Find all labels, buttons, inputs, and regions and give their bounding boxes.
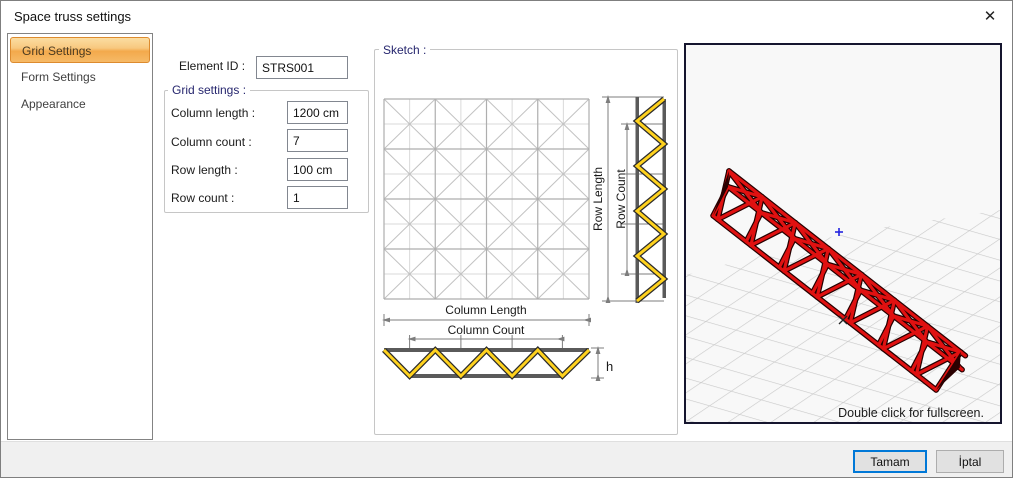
grid-settings-group-title: Grid settings : xyxy=(168,83,250,97)
row-length-field[interactable] xyxy=(287,158,348,181)
footer-bar: Tamam İptal xyxy=(1,441,1012,478)
row-count-dim-label: Row Count xyxy=(614,169,628,229)
column-length-dim-label: Column Length xyxy=(445,303,526,317)
sidebar-item-form-settings[interactable]: Form Settings xyxy=(10,64,150,90)
ok-button[interactable]: Tamam xyxy=(853,450,927,473)
close-icon[interactable]: ✕ xyxy=(980,7,1000,27)
row-length-label: Row length : xyxy=(171,163,238,177)
title-bar: Space truss settings ✕ xyxy=(1,1,1012,32)
column-count-label: Column count : xyxy=(171,135,252,149)
row-count-field[interactable] xyxy=(287,186,348,209)
column-count-dim-label: Column Count xyxy=(448,323,525,337)
settings-nav-list: Grid Settings Form Settings Appearance xyxy=(7,33,153,440)
sketch-diagram: Row Length Row Count Column Length Colum… xyxy=(376,91,672,393)
sketch-group-title: Sketch : xyxy=(379,43,430,57)
sidebar-item-appearance[interactable]: Appearance xyxy=(10,91,150,117)
truss-side-view-vertical xyxy=(636,97,667,303)
preview-3d-scene: Double click for fullscreen. xyxy=(686,45,1000,422)
sidebar-item-grid-settings[interactable]: Grid Settings xyxy=(10,37,150,63)
sidebar-item-label: Form Settings xyxy=(21,70,96,84)
fullscreen-hint: Double click for fullscreen. xyxy=(838,406,984,420)
column-count-field[interactable] xyxy=(287,129,348,152)
cancel-button[interactable]: İptal xyxy=(936,450,1004,473)
space-truss-settings-dialog: Space truss settings ✕ Grid Settings For… xyxy=(0,0,1013,478)
preview-3d-viewport[interactable]: Double click for fullscreen. xyxy=(684,43,1002,424)
dialog-title: Space truss settings xyxy=(14,9,131,24)
truss-side-view-horizontal xyxy=(384,348,589,378)
column-length-field[interactable] xyxy=(287,101,348,124)
element-id-label: Element ID : xyxy=(179,59,245,73)
height-dim-label: h xyxy=(606,359,613,374)
column-length-label: Column length : xyxy=(171,106,255,120)
row-length-dim-label: Row Length xyxy=(591,167,605,231)
sidebar-item-label: Grid Settings xyxy=(22,44,91,58)
truss-plan-grid xyxy=(384,99,589,299)
element-id-field[interactable] xyxy=(256,56,348,79)
row-count-label: Row count : xyxy=(171,191,234,205)
sidebar-item-label: Appearance xyxy=(21,97,86,111)
